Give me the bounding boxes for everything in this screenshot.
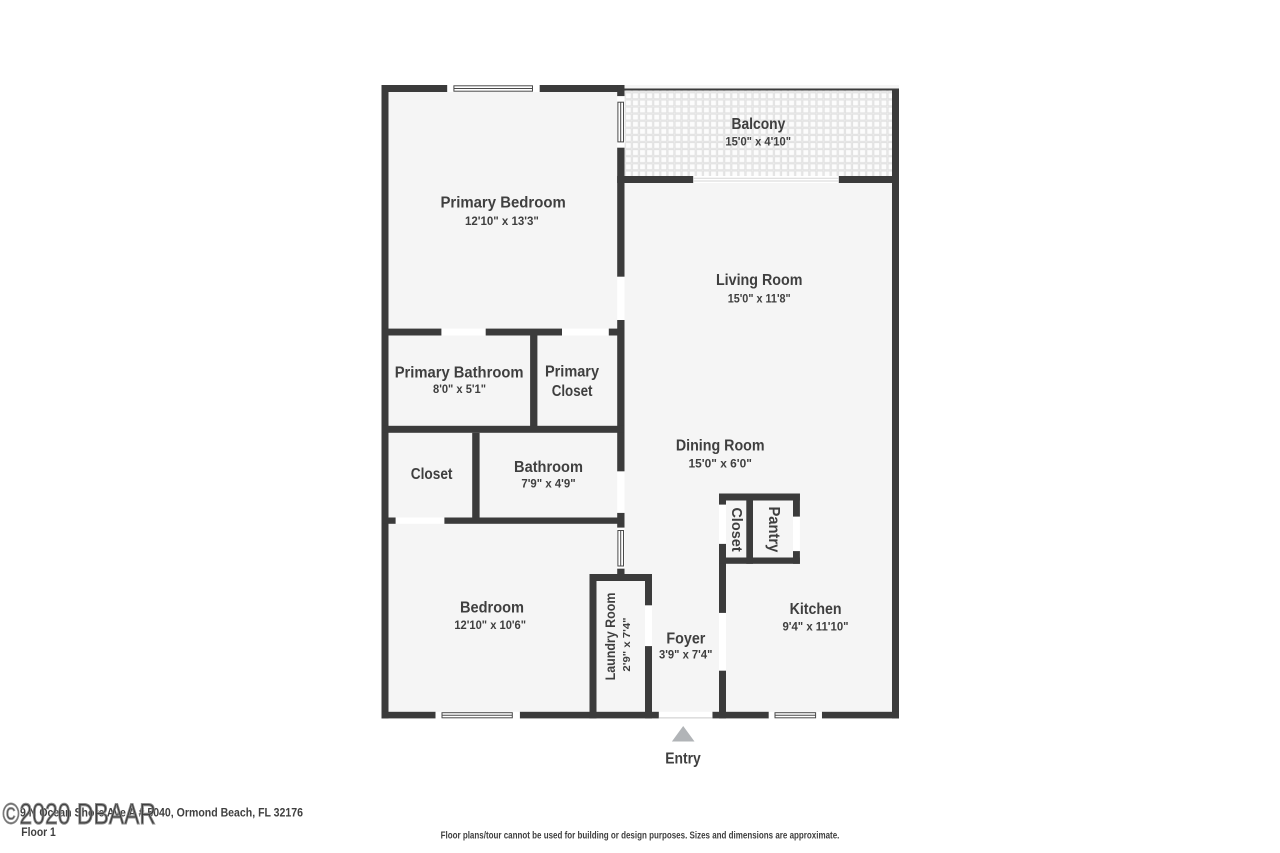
svg-text:15'0" x 6'0": 15'0" x 6'0" (689, 457, 752, 471)
svg-text:Primary Bathroom: Primary Bathroom (395, 364, 524, 381)
svg-text:3'9" x 7'4": 3'9" x 7'4" (659, 647, 712, 661)
svg-text:©2020 DBAAR: ©2020 DBAAR (3, 798, 157, 831)
svg-text:2'9" x 7'4": 2'9" x 7'4" (621, 617, 633, 671)
svg-text:15'0" x 11'8": 15'0" x 11'8" (728, 292, 791, 306)
svg-text:Bathroom: Bathroom (514, 459, 583, 476)
svg-text:12'10" x 13'3": 12'10" x 13'3" (465, 214, 539, 228)
svg-text:15'0" x 4'10": 15'0" x 4'10" (725, 135, 791, 149)
svg-text:Laundry Room: Laundry Room (602, 593, 618, 681)
svg-text:12'10" x 10'6": 12'10" x 10'6" (454, 618, 526, 632)
svg-text:Kitchen: Kitchen (790, 601, 842, 618)
svg-text:7'9" x 4'9": 7'9" x 4'9" (521, 477, 575, 491)
svg-text:Living Room: Living Room (716, 272, 803, 289)
svg-text:Closet: Closet (728, 507, 745, 551)
svg-text:Balcony: Balcony (731, 116, 785, 133)
svg-text:Pantry: Pantry (765, 506, 782, 552)
svg-text:Closet: Closet (552, 383, 593, 400)
svg-text:Primary: Primary (545, 363, 599, 380)
svg-text:8'0" x 5'1": 8'0" x 5'1" (433, 382, 486, 396)
svg-text:Bedroom: Bedroom (460, 600, 524, 617)
svg-text:Floor plans/tour cannot be use: Floor plans/tour cannot be used for buil… (441, 831, 840, 842)
svg-text:Entry: Entry (665, 750, 701, 767)
svg-text:Foyer: Foyer (666, 630, 705, 647)
svg-text:9'4" x 11'10": 9'4" x 11'10" (782, 620, 848, 634)
svg-text:Closet: Closet (411, 466, 453, 483)
svg-text:Primary Bedroom: Primary Bedroom (440, 195, 565, 212)
svg-text:Dining Room: Dining Room (676, 437, 765, 454)
svg-text:Floor 1: Floor 1 (21, 827, 56, 839)
